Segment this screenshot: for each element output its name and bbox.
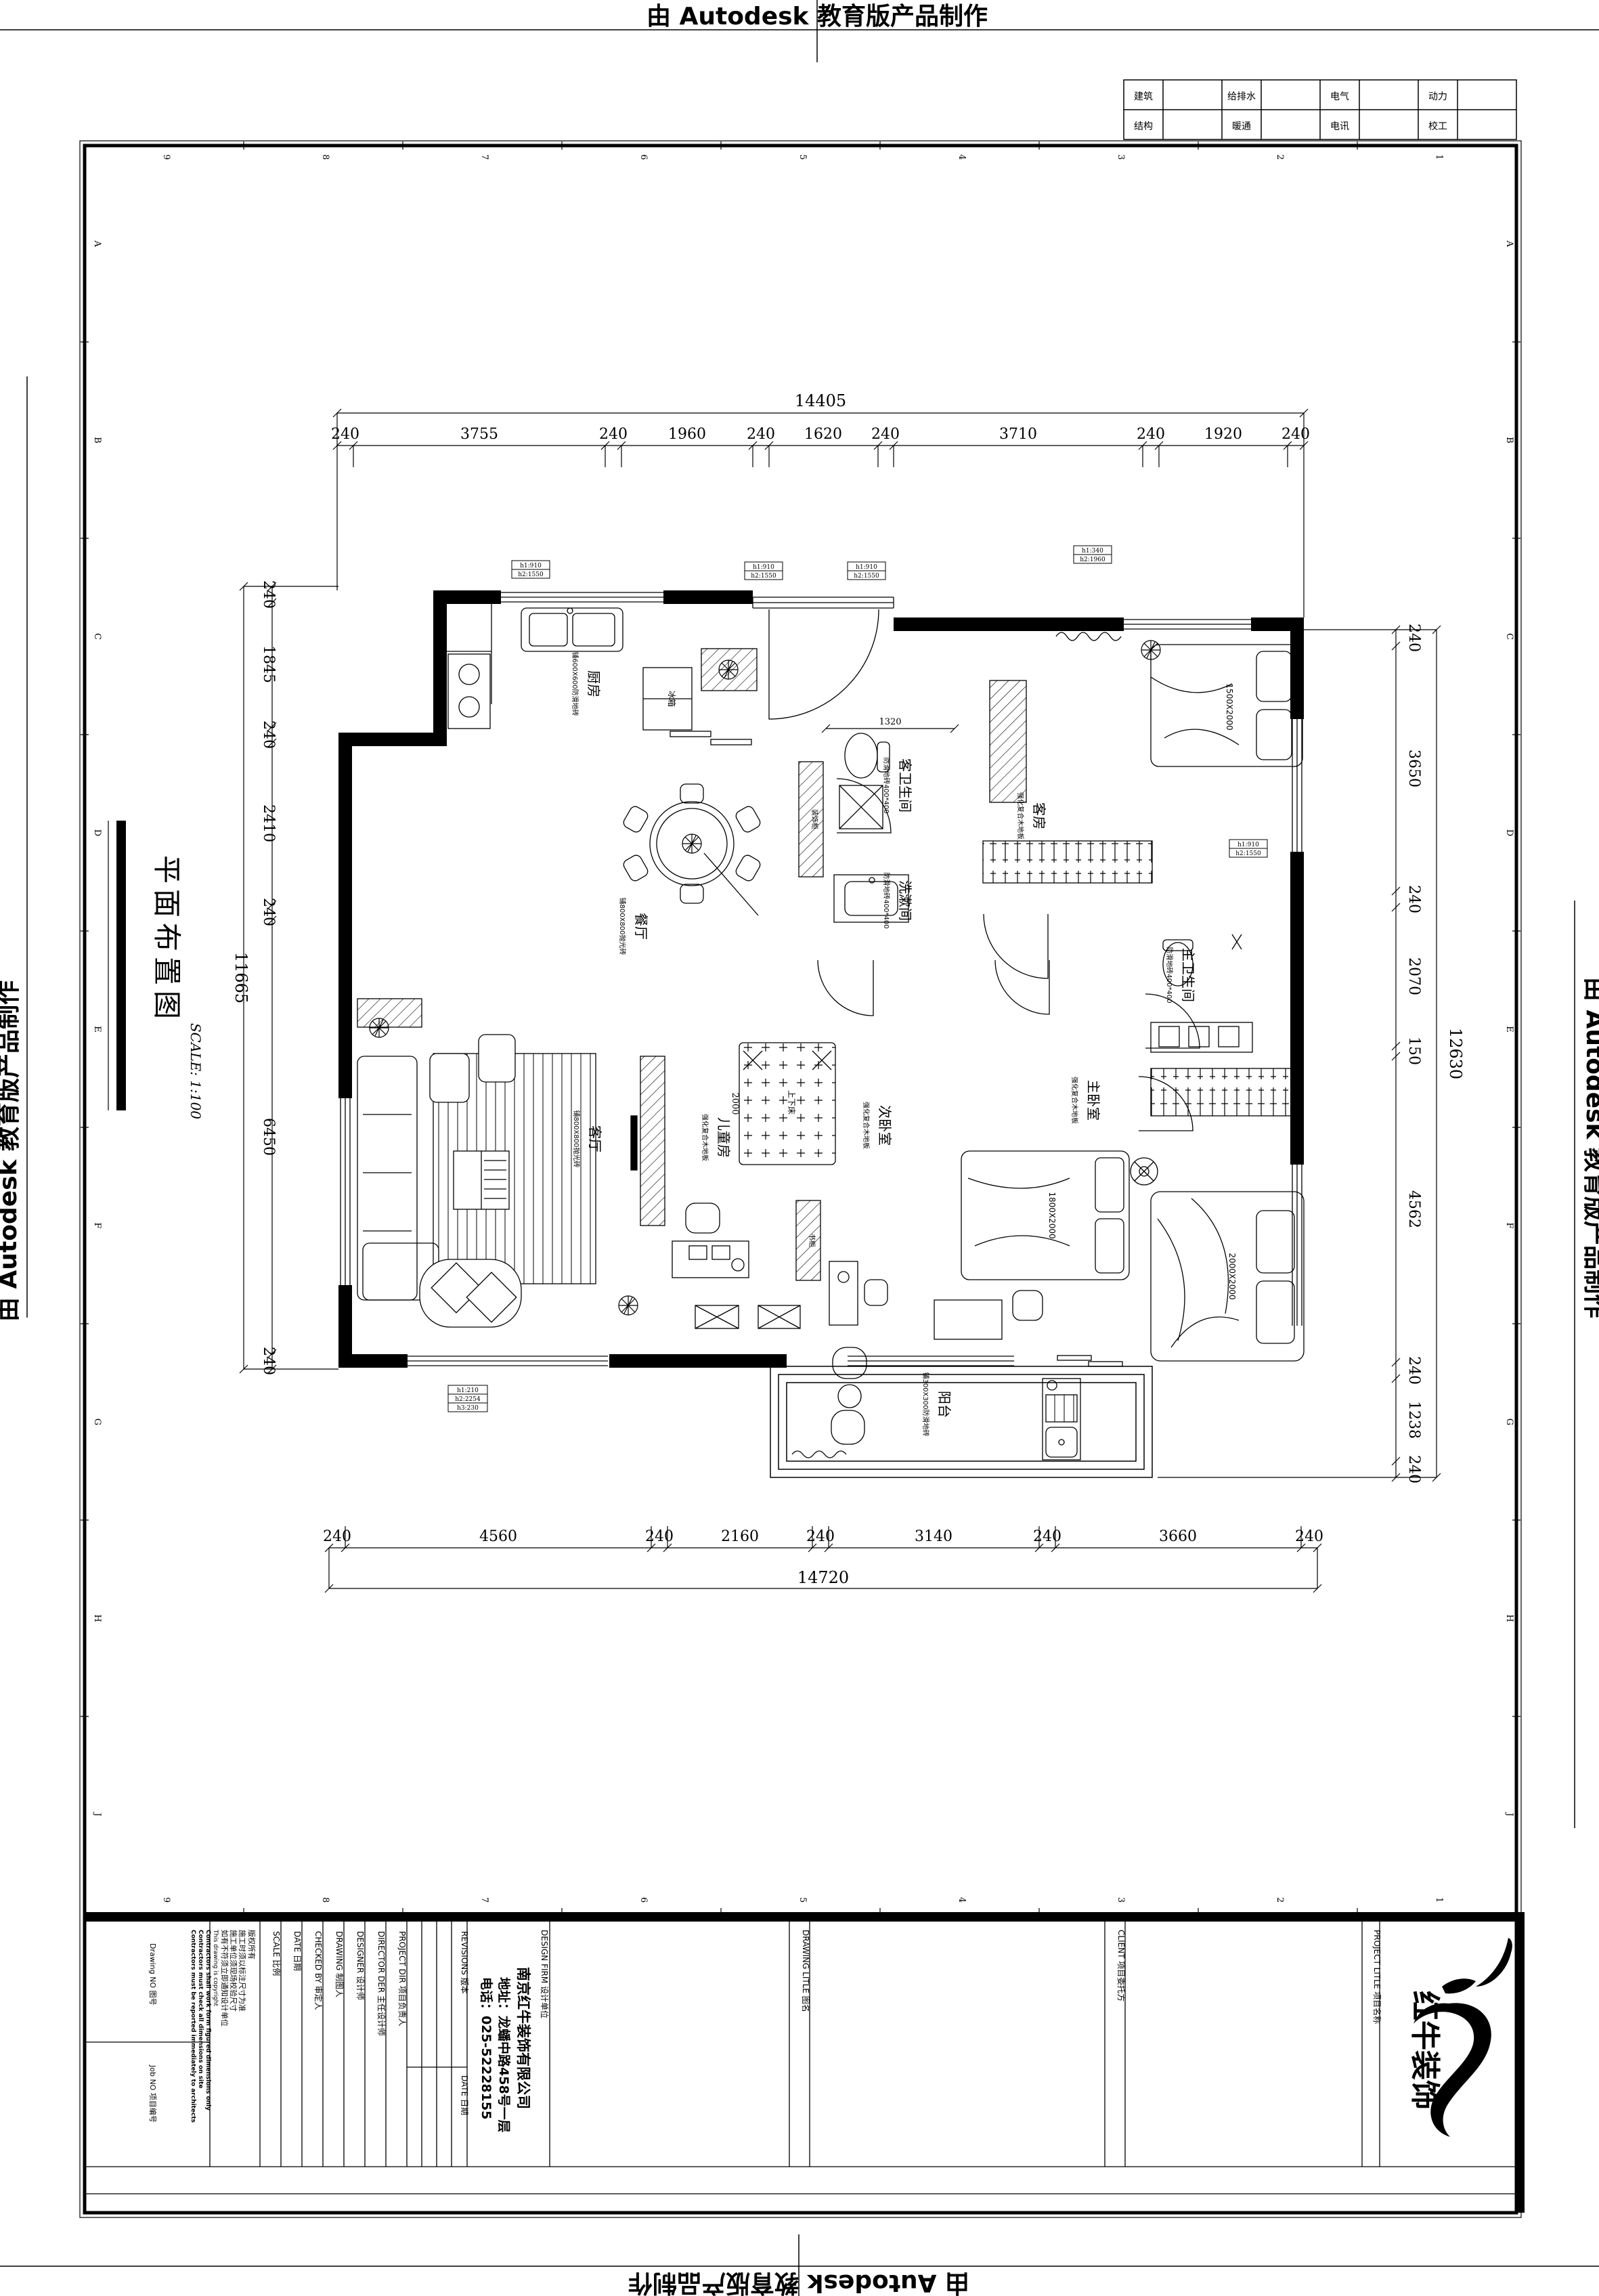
svg-text:结构: 结构 (1134, 121, 1153, 132)
svg-text:6: 6 (638, 154, 649, 160)
second-bed (961, 1151, 1129, 1280)
svg-text:强化复合木地板: 强化复合木地板 (1016, 792, 1025, 840)
kitchen-slider-2 (711, 739, 751, 745)
svg-text:客卫生间: 客卫生间 (897, 758, 913, 813)
balcony-chair-2 (831, 1410, 864, 1444)
svg-text:14720: 14720 (797, 1568, 849, 1587)
firm-phone: 电话：025-52228155 (479, 1977, 494, 2119)
svg-text:h3:230: h3:230 (457, 1405, 479, 1412)
svg-text:h1:340: h1:340 (1082, 548, 1103, 555)
living-cabinet (357, 999, 422, 1027)
cad-sheet: { "watermark": { "text": "由 Autodesk 教育版… (0, 0, 1599, 2296)
svg-text:防滑地砖400*400: 防滑地砖400*400 (1165, 947, 1174, 1003)
svg-text:D: D (92, 829, 102, 836)
master-bed (1151, 1192, 1304, 1361)
svg-text:装饰柜: 装饰柜 (810, 809, 819, 829)
balcony-chair-1 (833, 1347, 867, 1379)
svg-text:防滑地砖400*400: 防滑地砖400*400 (882, 757, 891, 813)
svg-text:h1:910: h1:910 (753, 564, 774, 571)
svg-text:14405: 14405 (795, 391, 846, 410)
svg-text:1920: 1920 (1204, 426, 1242, 443)
svg-text:240: 240 (260, 580, 277, 609)
svg-text:2070: 2070 (1405, 957, 1422, 995)
dim-bath-width: 1320 (879, 717, 901, 727)
svg-text:9: 9 (161, 1897, 171, 1903)
svg-text:A: A (92, 240, 102, 247)
sheet-scale: SCALE: 1:100 (188, 1023, 204, 1119)
svg-text:铺600X600防滑地砖: 铺600X600防滑地砖 (571, 651, 579, 716)
svg-text:校工: 校工 (1428, 121, 1447, 132)
balcony-squiggle (792, 1451, 846, 1458)
kitchen-sink (521, 608, 623, 651)
svg-text:客厅: 客厅 (587, 1125, 603, 1152)
entry-door (769, 609, 879, 719)
svg-text:厨房: 厨房 (586, 670, 602, 697)
svg-text:G: G (92, 1418, 102, 1425)
svg-text:3: 3 (1116, 1897, 1126, 1903)
svg-text:铺800X800抛光砖: 铺800X800抛光砖 (618, 897, 627, 955)
svg-text:This drawing is copyright: This drawing is copyright (212, 1929, 219, 2006)
svg-text:E: E (92, 1026, 102, 1033)
svg-text:3710: 3710 (999, 426, 1037, 443)
sheet-title-block: 平面布置图 SCALE: 1:100 (108, 821, 204, 1119)
svg-text:240: 240 (645, 1528, 674, 1545)
svg-text:240: 240 (747, 426, 775, 443)
svg-text:J: J (1504, 1811, 1514, 1816)
svg-text:3: 3 (1116, 154, 1126, 160)
firm-name: 南京红牛装饰有限公司 (515, 1967, 531, 2109)
svg-text:240: 240 (806, 1528, 835, 1545)
discipline-labels: 建筑 给排水 电气 动力 结构 暖通 电讯 校工 (1134, 91, 1447, 132)
svg-text:电气: 电气 (1330, 91, 1349, 102)
svg-text:240: 240 (1405, 885, 1422, 913)
svg-text:4: 4 (957, 154, 967, 160)
sofa (357, 1056, 417, 1300)
svg-text:洗漱间: 洗漱间 (897, 880, 913, 921)
svg-text:240: 240 (1282, 426, 1310, 443)
svg-text:240: 240 (1405, 624, 1422, 652)
svg-text:G: G (1504, 1418, 1514, 1425)
svg-text:5: 5 (797, 1897, 808, 1903)
svg-text:Contractors must check all dim: Contractors must check all dimensions on… (197, 1930, 204, 2089)
scale-label: SCALE 比例 (271, 1931, 281, 1976)
svg-text:240: 240 (1405, 1356, 1422, 1385)
svg-text:2160: 2160 (721, 1528, 759, 1545)
rev-date-label: DATE 日期 (460, 2075, 469, 2115)
firm-address: 地址：龙蟠中路458号一层 (496, 1977, 512, 2133)
svg-text:12630: 12630 (1446, 1028, 1465, 1079)
revisions-label: REVISIONS 版本 (460, 1931, 469, 1994)
svg-text:2: 2 (1275, 154, 1285, 160)
svg-text:h2:1550: h2:1550 (751, 573, 776, 580)
svg-text:D: D (1504, 829, 1514, 836)
svg-text:240: 240 (1405, 1455, 1422, 1483)
svg-text:给排水: 给排水 (1227, 91, 1256, 102)
svg-text:B: B (92, 437, 102, 443)
svg-text:5: 5 (797, 154, 808, 160)
svg-text:Contractors must be reported i: Contractors must be reported immediately… (190, 1930, 196, 2123)
svg-text:强化复合木地板: 强化复合木地板 (701, 1114, 709, 1161)
client-label: CLIENT 项目委托方 (1116, 1930, 1126, 2001)
drawing-canvas: 由 Autodesk 教育版产品制作 由 Autodesk 教育版产品制作 由 … (0, 0, 1599, 2296)
plant-icon (719, 660, 738, 679)
svg-text:h1:210: h1:210 (457, 1387, 479, 1394)
guest-heater (983, 841, 1152, 883)
svg-text:铺300X300防滑地砖: 铺300X300防滑地砖 (921, 1372, 930, 1436)
room-labels: 厨房 铺600X600防滑地砖 餐厅 铺800X800抛光砖 客厅 铺800X8… (571, 651, 1196, 1436)
svg-text:240: 240 (1295, 1528, 1323, 1545)
svg-text:240: 240 (323, 1528, 351, 1545)
copyright-note: 版权所有 (247, 1930, 257, 1959)
svg-text:1800X2000: 1800X2000 (1047, 1192, 1057, 1238)
children-chair (686, 1203, 720, 1233)
svg-text:Contractors shall work form fi: Contractors shall work form figured dime… (204, 1930, 211, 2110)
svg-text:施工时须以标注尺寸为准: 施工时须以标注尺寸为准 (238, 1930, 247, 2012)
svg-text:H: H (92, 1614, 102, 1622)
project-dir-label: PROJECT DIR 项目负责人 (397, 1931, 407, 2027)
svg-text:h1:910: h1:910 (520, 563, 542, 569)
svg-text:1845: 1845 (260, 645, 277, 683)
svg-text:240: 240 (260, 1347, 277, 1375)
dim-labels-top: 14405 240 3755 240 1960 240 1620 240 371… (331, 391, 1310, 443)
checked-label: CHECKED BY 审定人 (313, 1931, 324, 2010)
svg-text:h2:2254: h2:2254 (455, 1396, 481, 1403)
svg-text:6: 6 (638, 1897, 649, 1903)
job-no-label: Job NO 项目编号 (148, 2064, 158, 2123)
sheet-frame (80, 141, 1521, 2217)
svg-text:1238: 1238 (1405, 1401, 1422, 1439)
svg-text:7: 7 (479, 1897, 489, 1903)
svg-text:4: 4 (957, 1897, 967, 1903)
master-wardrobe (1151, 1068, 1294, 1116)
ottoman-2 (479, 1035, 515, 1082)
svg-text:h2:1960: h2:1960 (1080, 557, 1105, 563)
svg-text:主卧室: 主卧室 (1085, 1080, 1101, 1121)
watermark-bottom: 由 Autodesk 教育版产品制作 (628, 2269, 969, 2296)
svg-text:h2:1550: h2:1550 (854, 573, 879, 580)
children-cabinet (829, 1261, 858, 1325)
svg-text:施工单位须现场校验尺寸: 施工单位须现场校验尺寸 (229, 1930, 238, 2012)
drawing-no-label: Drawing NO 图号 (148, 1943, 157, 2006)
tv-cabinet (640, 1056, 665, 1226)
svg-text:h1:910: h1:910 (856, 564, 877, 571)
dim-labels-left: 240 1845 240 2410 240 6450 240 11665 (232, 580, 277, 1375)
svg-text:240: 240 (1137, 426, 1165, 443)
svg-text:暖通: 暖通 (1232, 121, 1251, 132)
svg-text:防滑地砖400*400: 防滑地砖400*400 (882, 872, 891, 928)
guest-toilet (845, 733, 877, 778)
second-desk (934, 1300, 1002, 1339)
svg-text:A: A (1504, 240, 1514, 247)
dim-bunk-length: 2000 (730, 1092, 740, 1114)
svg-text:强化复合木地板: 强化复合木地板 (1070, 1077, 1079, 1124)
drawing-title-label: DRAWING LITLE 图名 (801, 1930, 811, 2012)
date-label: DATE 日期 (292, 1931, 302, 1971)
svg-text:建筑: 建筑 (1134, 91, 1153, 102)
svg-text:上下床: 上下床 (787, 1090, 796, 1114)
svg-text:C: C (92, 633, 102, 640)
frame-grid-numbers: 9 8 7 6 5 4 3 2 1 9 8 7 6 5 4 3 2 1 (161, 154, 1444, 1903)
balcony-rails (770, 1366, 1152, 1477)
second-bed-door (995, 960, 1049, 1014)
svg-text:11665: 11665 (232, 952, 250, 1003)
guest-wardrobe (990, 680, 1026, 802)
balcony-slider-2 (1089, 1362, 1122, 1366)
svg-text:阳台: 阳台 (936, 1391, 952, 1418)
svg-text:书柜: 书柜 (808, 1234, 816, 1247)
svg-text:3660: 3660 (1159, 1528, 1197, 1545)
furniture-labels: 冰箱 装饰柜 书柜 上下床 1500X2000 1800X2000 2000X2… (667, 683, 1237, 1299)
svg-text:铺800X800抛光砖: 铺800X800抛光砖 (572, 1110, 581, 1167)
svg-text:F: F (92, 1222, 102, 1228)
drawing-label: DRAWING 制图人 (334, 1931, 344, 1997)
svg-text:如有不符须立即通知设计单位: 如有不符须立即通知设计单位 (220, 1930, 229, 2027)
svg-text:240: 240 (260, 720, 277, 749)
svg-text:2000X2000: 2000X2000 (1227, 1253, 1237, 1299)
kitchen-slider-1 (670, 731, 711, 737)
svg-text:4560: 4560 (479, 1528, 517, 1545)
svg-text:F: F (1504, 1222, 1514, 1228)
svg-text:150: 150 (1405, 1037, 1422, 1065)
svg-text:3140: 3140 (915, 1528, 952, 1545)
svg-text:h1:910: h1:910 (1237, 842, 1259, 848)
svg-text:客房: 客房 (1031, 802, 1047, 829)
svg-text:2: 2 (1275, 1897, 1285, 1903)
svg-text:餐厅: 餐厅 (633, 913, 649, 940)
tv (631, 1116, 637, 1170)
svg-text:4562: 4562 (1405, 1190, 1422, 1228)
doors (670, 609, 1200, 1366)
svg-text:1960: 1960 (668, 426, 706, 443)
ottoman-1 (430, 1054, 469, 1102)
watermark-right: 由 Autodesk 教育版产品制作 (1581, 977, 1599, 1318)
shower-head (1232, 934, 1242, 949)
designer-label: DESIGNER 设计师 (355, 1931, 365, 2000)
svg-text:H: H (1504, 1614, 1514, 1622)
svg-text:6450: 6450 (260, 1118, 277, 1156)
svg-text:240: 240 (331, 426, 359, 443)
svg-text:8: 8 (320, 154, 330, 160)
project-title-label: PROJECT LITLE 项目名称 (1372, 1930, 1382, 2024)
svg-text:240: 240 (599, 426, 628, 443)
svg-text:冰箱: 冰箱 (667, 691, 677, 707)
sheet-title: 平面布置图 (150, 855, 183, 1024)
dim-labels-bottom: 240 4560 240 2160 240 3140 240 3660 240 … (323, 1528, 1323, 1587)
second-chair (1013, 1291, 1043, 1320)
svg-text:电讯: 电讯 (1330, 121, 1349, 132)
svg-text:1500X2000: 1500X2000 (1225, 683, 1234, 730)
svg-text:7: 7 (479, 154, 489, 160)
balcony-slider-1 (1057, 1356, 1091, 1360)
svg-text:3650: 3650 (1405, 750, 1422, 787)
discipline-table (1124, 80, 1516, 139)
svg-text:240: 240 (1033, 1528, 1061, 1545)
svg-text:E: E (1504, 1026, 1514, 1033)
svg-text:次卧室: 次卧室 (877, 1105, 893, 1146)
svg-text:1620: 1620 (804, 426, 842, 443)
design-firm-label: DESIGN FIRM 设计单位 (540, 1930, 550, 2018)
svg-text:h2:1550: h2:1550 (518, 571, 544, 578)
children-door (818, 960, 873, 1016)
svg-text:J: J (92, 1811, 102, 1816)
furniture-graphics (357, 604, 1304, 1460)
svg-text:h2:1550: h2:1550 (1235, 850, 1261, 857)
svg-text:1: 1 (1434, 154, 1444, 160)
svg-text:强化复合木地板: 强化复合木地板 (862, 1102, 871, 1149)
children-desk (672, 1241, 749, 1278)
svg-text:9: 9 (161, 154, 171, 160)
svg-text:儿童房: 儿童房 (716, 1117, 732, 1158)
svg-text:3755: 3755 (460, 426, 498, 443)
curtain-squiggle (1056, 632, 1121, 641)
svg-text:1: 1 (1434, 1897, 1444, 1903)
balcony-table (838, 1385, 861, 1408)
title-block-texts: Drawing NO 图号 Job NO 项目编号 版权所有 施工时须以标注尺寸… (148, 1929, 1442, 2133)
dim-labels-right: 240 3650 240 2070 150 4562 240 1238 240 … (1405, 624, 1465, 1483)
svg-text:B: B (1504, 437, 1514, 443)
svg-text:240: 240 (260, 898, 277, 926)
svg-text:C: C (1504, 633, 1514, 640)
svg-text:240: 240 (871, 426, 900, 443)
svg-text:主卫生间: 主卫生间 (1180, 948, 1196, 1002)
watermark-top: 由 Autodesk 教育版产品制作 (647, 3, 988, 30)
svg-text:8: 8 (320, 1897, 330, 1903)
svg-text:2410: 2410 (260, 804, 277, 842)
watermark-left: 由 Autodesk 教育版产品制作 (0, 980, 22, 1322)
director-label: DIRECTOR DER 主任设计师 (376, 1931, 386, 2036)
svg-text:动力: 动力 (1428, 91, 1447, 102)
guest-room-door (984, 914, 1048, 978)
